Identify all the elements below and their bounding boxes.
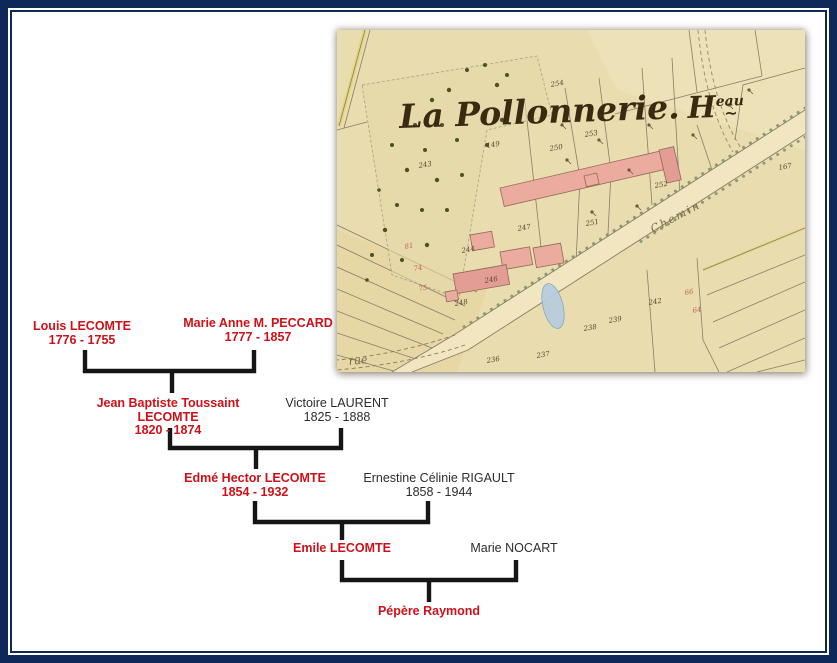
map-canvas: 2541492432502532522512472442462482382392… [337, 30, 805, 372]
person-dates: 1854 - 1932 [160, 486, 350, 500]
person-dates: 1858 - 1944 [344, 486, 534, 500]
person-louis-lecomte: Louis LECOMTE 1776 - 1755 [0, 320, 177, 347]
parcel-number: 64 [692, 306, 702, 315]
person-name: Jean Baptiste Toussaint LECOMTE [73, 397, 263, 424]
person-emile-lecomte: Emile LECOMTE [247, 542, 437, 556]
person-marie-nocart: Marie NOCART [419, 542, 609, 556]
person-dates: 1820 - 1874 [73, 424, 263, 438]
person-name: Marie NOCART [419, 542, 609, 556]
person-name: Louis LECOMTE [0, 320, 177, 334]
corner-label: rue [348, 353, 369, 368]
person-dates: 1825 - 1888 [242, 411, 432, 425]
person-name: Emile LECOMTE [247, 542, 437, 556]
bracket-generation-4 [342, 560, 516, 602]
parcel-number: 81 [404, 242, 414, 251]
person-dates: 1777 - 1857 [163, 331, 353, 345]
person-marie-anne-peccard: Marie Anne M. PECCARD 1777 - 1857 [163, 317, 353, 344]
bracket-generation-3 [255, 501, 428, 540]
person-name: Pépère Raymond [334, 605, 524, 619]
person-victoire-laurent: Victoire LAURENT 1825 - 1888 [242, 397, 432, 424]
person-jean-baptiste-lecomte: Jean Baptiste Toussaint LECOMTE 1820 - 1… [73, 397, 263, 438]
person-name: Edmé Hector LECOMTE [160, 472, 350, 486]
person-pepere-raymond: Pépère Raymond [334, 605, 524, 619]
person-dates: 1776 - 1755 [0, 334, 177, 348]
person-ernestine-rigault: Ernestine Célinie RIGAULT 1858 - 1944 [344, 472, 534, 499]
person-name: Ernestine Célinie RIGAULT [344, 472, 534, 486]
person-name: Victoire LAURENT [242, 397, 432, 411]
person-edme-hector-lecomte: Edmé Hector LECOMTE 1854 - 1932 [160, 472, 350, 499]
bracket-generation-1 [85, 350, 254, 393]
genealogy-page: 2541492432502532522512472442462482382392… [0, 0, 837, 663]
person-name: Marie Anne M. PECCARD [163, 317, 353, 331]
cadastral-map-image: 2541492432502532522512472442462482382392… [337, 30, 805, 372]
parcel-number: 74 [413, 264, 423, 273]
